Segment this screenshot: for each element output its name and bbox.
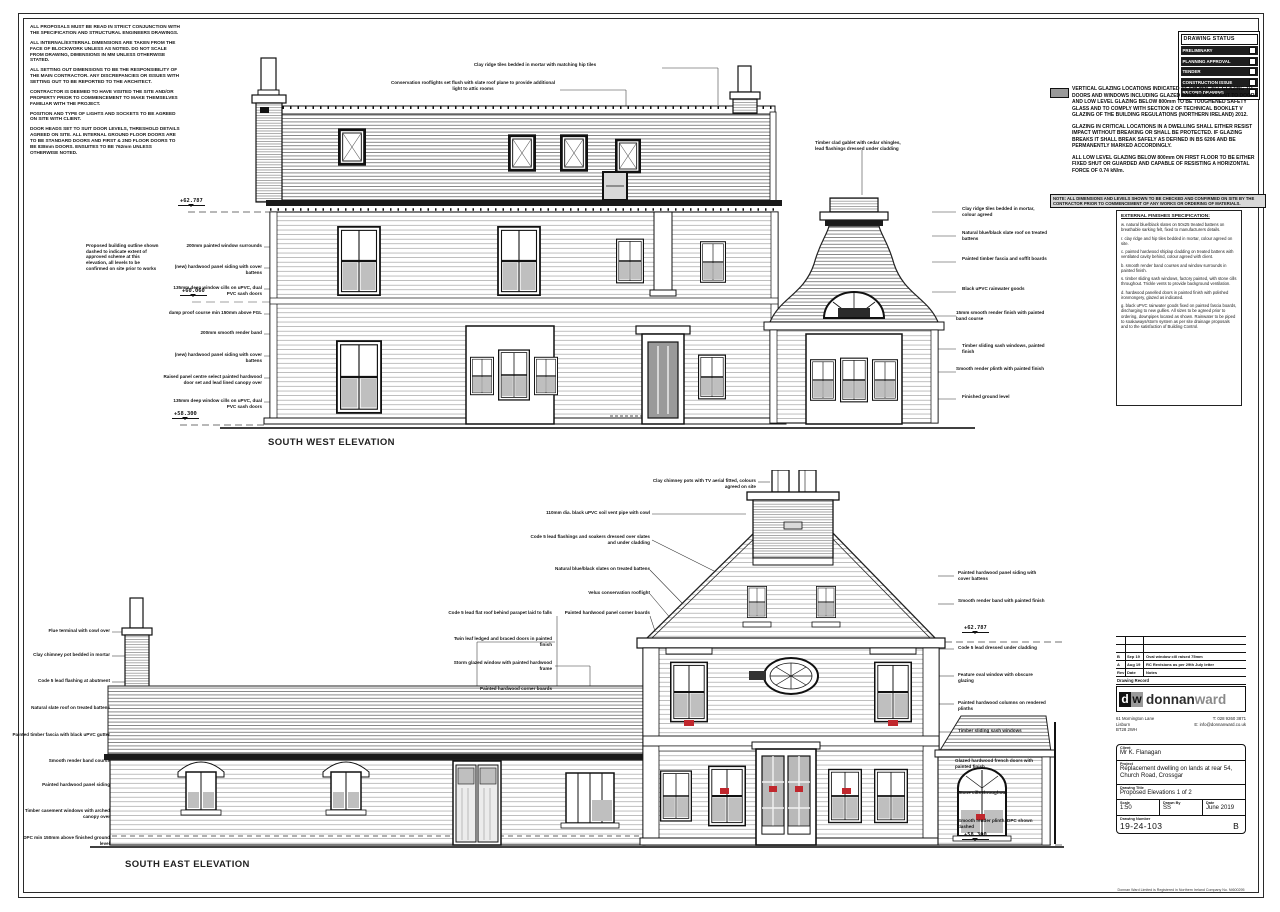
revision-table: BSep 19Oval window cill raised 75mmAAug … (1116, 636, 1246, 685)
registration-footnote: Donnan Ward Limited is Registered in Nor… (1108, 888, 1254, 892)
revision-table-footer: Drawing Record (1116, 677, 1246, 685)
drawn-by-value: SS (1163, 805, 1199, 813)
status-label: CONSTRUCTION ISSUE (1183, 80, 1233, 85)
company-contact: T: 028 9260 3871 E: info@donnanward.co.u… (1194, 716, 1246, 733)
glazing-note: VERTICAL GLAZING LOCATIONS INDICATED AS … (1072, 86, 1260, 119)
drawing-status-row: PLANNING APPROVAL (1181, 57, 1258, 66)
se-chimney-main (747, 470, 839, 565)
revision-row (1116, 637, 1246, 645)
drawing-number-cell: Drawing Number 19-24-103 (1117, 816, 1227, 833)
status-checkbox (1249, 68, 1256, 75)
company-address-block: 61 Mornington Lane Lisburn BT28 2WH T: 0… (1116, 716, 1246, 733)
status-label: PRELIMINARY (1183, 48, 1213, 53)
status-checkbox (1249, 47, 1256, 54)
spec-note-item: s. timber sliding sash windows, factory … (1121, 276, 1237, 287)
revision-row: RevDateNotes (1116, 669, 1246, 677)
company-name: donnanward (1146, 692, 1226, 707)
title-block-drawing-title: Drawing Title Proposed Elevations 1 of 2 (1117, 785, 1245, 801)
south-west-elevation-drawing (70, 50, 1070, 450)
se-french-doors (752, 742, 820, 845)
spec-notes-box: EXTERNAL FINISHES SPECIFICATION: w. natu… (1116, 210, 1242, 406)
status-label: PLANNING APPROVAL (1183, 59, 1231, 64)
glazing-notes-block: VERTICAL GLAZING LOCATIONS INDICATED AS … (1072, 86, 1260, 179)
project-value: Replacement dwelling on lands at rear 54… (1120, 766, 1242, 782)
se-right-wing (935, 716, 1055, 845)
scale-value: 1:50 (1120, 805, 1156, 813)
company-address: 61 Mornington Lane Lisburn BT28 2WH (1116, 716, 1154, 733)
status-label: TENDER (1183, 69, 1201, 74)
sw-chimney-left (252, 58, 286, 202)
client-value: Mr K. Flanagan (1120, 750, 1242, 758)
sw-eaves (266, 200, 782, 210)
south-west-elevation-title: SOUTH WEST ELEVATION (268, 437, 395, 448)
drawing-status-row: TENDER (1181, 67, 1258, 76)
south-east-elevation-title: SOUTH EAST ELEVATION (125, 859, 250, 870)
spec-note-item: d. hardwood panelled doors in painted fi… (1121, 290, 1237, 301)
revision-row: AAug 19RC Revisions as per 29th July let… (1116, 661, 1246, 669)
revision-cell: B (1227, 816, 1245, 833)
company-email: E: info@donnanward.co.uk (1194, 722, 1246, 728)
company-logo: d w donnanward (1116, 686, 1246, 712)
status-checkbox (1249, 79, 1256, 86)
glazing-note: ALL LOW LEVEL GLAZING BELOW 800mm ON FIR… (1072, 155, 1260, 175)
spec-notes-heading: EXTERNAL FINISHES SPECIFICATION: (1121, 214, 1237, 219)
revision-row: BSep 19Oval window cill raised 75mm (1116, 653, 1246, 661)
date-value: June 2019 (1206, 805, 1242, 813)
status-checkbox (1249, 58, 1256, 65)
title-block-project: Project Replacement dwelling on lands at… (1117, 761, 1245, 785)
spec-note-item: b. smooth render band courses and window… (1121, 263, 1237, 274)
title-block-client: Client Mr K. Flanagan (1117, 745, 1245, 761)
drawing-status-row: PRELIMINARY (1181, 46, 1258, 55)
drawing-status-title: DRAWING STATUS (1181, 34, 1258, 45)
sw-pavilion (764, 198, 944, 424)
drawn-by-cell: Drawn By SS (1160, 800, 1203, 815)
sw-chimney-right (730, 66, 760, 113)
south-east-elevation-drawing (20, 470, 1080, 870)
title-block-scale-row: Scale 1:50 Drawn By SS Date June 2019 (1117, 800, 1245, 816)
date-cell: Date June 2019 (1203, 800, 1245, 815)
se-chimney-left (122, 598, 152, 697)
spec-note-item: c. painted hardwood shiplap cladding on … (1121, 249, 1237, 260)
spec-notes-body: w. natural blue/black slates on 50x25 tr… (1121, 222, 1237, 329)
logo-tile-d: d (1119, 692, 1131, 707)
general-note: ALL PROPOSALS MUST BE READ IN STRICT CON… (30, 24, 180, 36)
drawing-sheet: ALL PROPOSALS MUST BE READ IN STRICT CON… (0, 0, 1280, 912)
spec-note-item: w. natural blue/black slates on 50x25 tr… (1121, 222, 1237, 233)
title-block-number-row: Drawing Number 19-24-103 B (1117, 816, 1245, 833)
dimensions-note-banner: NOTE: ALL DIMENSIONS AND LEVELS SHOWN TO… (1050, 194, 1266, 208)
drawing-title-value: Proposed Elevations 1 of 2 (1120, 790, 1242, 798)
revision-row (1116, 645, 1246, 653)
scale-cell: Scale 1:50 (1117, 800, 1160, 815)
logo-tile-w: w (1131, 692, 1143, 707)
spec-note-item: r. clay ridge and hip tiles bedded in mo… (1121, 236, 1237, 247)
drawing-number-value: 19-24-103 (1120, 821, 1224, 831)
spec-note-item: g. black uPVC rainwater goods fixed on p… (1121, 303, 1237, 329)
glazing-note: GLAZING IN CRITICAL LOCATIONS IN A DWELL… (1072, 124, 1260, 150)
title-block: Client Mr K. Flanagan Project Replacemen… (1116, 744, 1246, 834)
revision-value: B (1233, 821, 1239, 831)
